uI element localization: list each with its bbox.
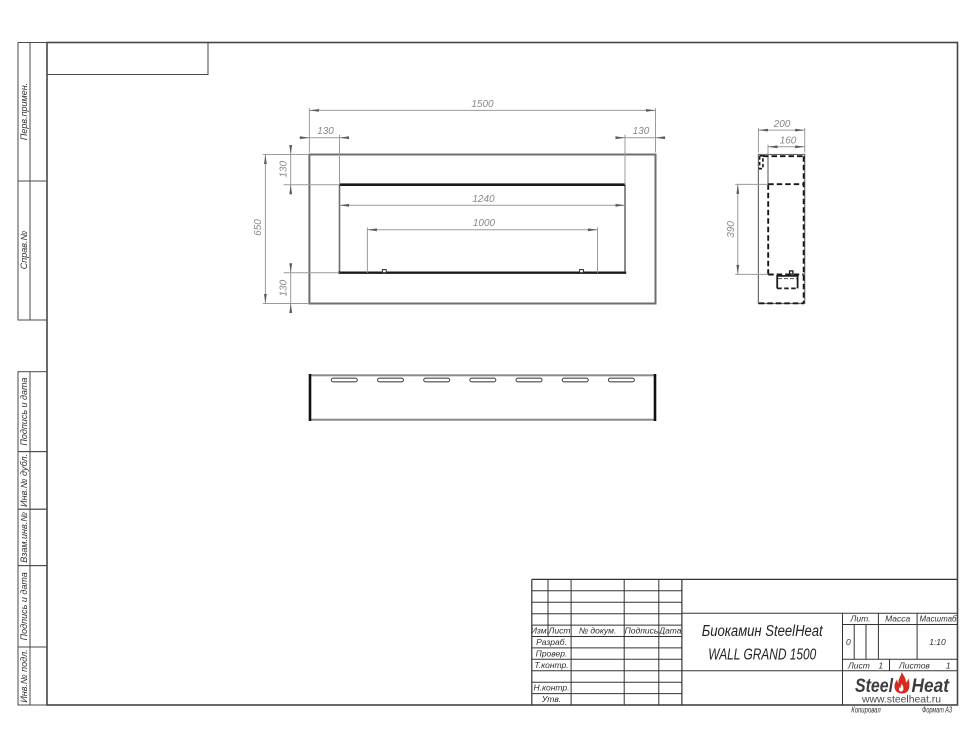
svg-text:Провер.: Провер. [536,648,568,658]
svg-text:Инв.№ подл.: Инв.№ подл. [19,649,29,702]
svg-text:№ докум.: № докум. [579,626,616,636]
svg-text:1:10: 1:10 [929,637,946,647]
svg-text:Т.контр.: Т.контр. [534,660,568,670]
svg-text:1: 1 [946,660,951,670]
svg-text:Дата: Дата [658,626,682,636]
svg-text:Инв.№ дубл.: Инв.№ дубл. [19,454,29,507]
svg-text:Листов: Листов [898,660,931,670]
svg-text:130: 130 [278,279,289,296]
svg-text:Лист: Лист [847,660,870,670]
svg-text:1500: 1500 [471,99,494,110]
svg-text:130: 130 [633,126,650,137]
svg-text:Изм.: Изм. [531,626,549,636]
svg-text:Формат А3: Формат А3 [922,705,952,715]
svg-text:200: 200 [773,119,791,130]
svg-text:Перв.примен.: Перв.примен. [19,83,29,140]
svg-text:Н.контр.: Н.контр. [534,683,570,693]
svg-text:Подпись: Подпись [625,626,659,636]
svg-text:Подпись и дата: Подпись и дата [19,378,29,446]
svg-text:160: 160 [780,136,797,147]
svg-text:Биокамин SteelHeat: Биокамин SteelHeat [702,623,824,640]
svg-text:Копировал: Копировал [851,705,881,715]
svg-text:1240: 1240 [472,194,495,205]
svg-text:650: 650 [253,219,264,236]
svg-text:Взам.инв.№: Взам.инв.№ [19,512,29,563]
svg-text:Лит.: Лит. [850,614,871,624]
svg-text:Лист: Лист [548,626,571,636]
svg-text:Утв.: Утв. [541,694,561,704]
svg-text:Масса: Масса [885,614,910,624]
svg-text:WALL GRAND 1500: WALL GRAND 1500 [708,647,816,664]
svg-text:Справ.№: Справ.№ [19,231,29,270]
svg-text:390: 390 [726,221,737,238]
svg-text:Подпись и дата: Подпись и дата [19,572,29,640]
svg-text:Масштаб: Масштаб [920,614,958,624]
svg-text:1000: 1000 [473,218,496,229]
svg-text:Разраб.: Разраб. [536,637,567,647]
svg-text:0: 0 [846,637,851,647]
svg-text:130: 130 [278,161,289,178]
svg-text:130: 130 [317,126,334,137]
svg-text:1: 1 [878,660,883,670]
